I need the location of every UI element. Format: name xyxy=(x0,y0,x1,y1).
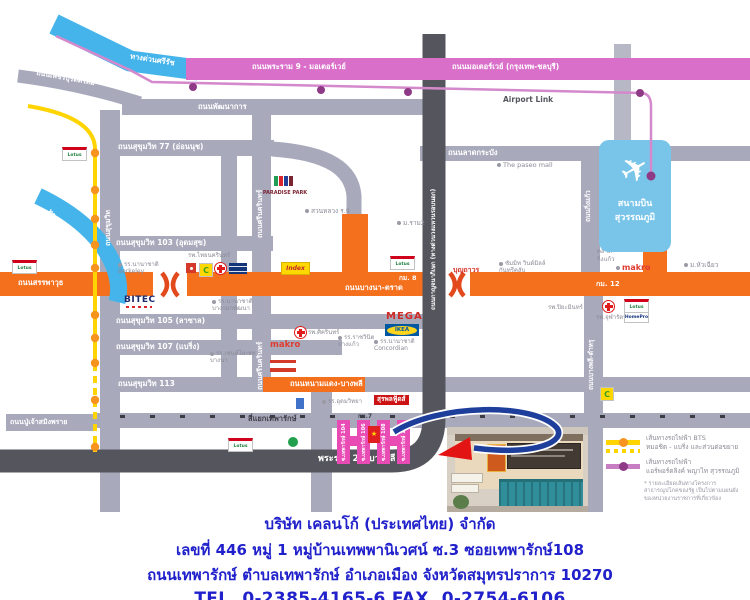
legend-note: * รายละเอียดเส้นทางโครงการสาธารณูปโภคของ… xyxy=(644,481,746,503)
road-label-namdaeng: ถนนหนามแดง-บางพลี xyxy=(290,379,363,388)
legend-arl-text-2: แอร์พอร์ตลิงค์ พญาไท สุวรรณภูมิ xyxy=(646,468,739,476)
makro-logo: makro xyxy=(270,340,300,350)
logo-bar xyxy=(274,176,278,186)
road-label-sukhumvit113: ถนนสุขุมวิท 113 xyxy=(118,379,175,388)
road-label-srinagarindra-lower: ถนนศรีนครินทร์ xyxy=(256,342,264,390)
legend-arl-station-dot xyxy=(619,462,628,471)
lotus-logo: Lotus xyxy=(62,147,87,161)
index-logo: Index xyxy=(281,262,310,275)
road-phatthanakan xyxy=(122,99,428,115)
landmark-berkeley: รร.นานาชาติ Berkeley xyxy=(118,261,159,275)
road-sukhumvit xyxy=(100,110,120,512)
map-dot xyxy=(322,400,326,404)
lotus-logo: Lotus xyxy=(12,260,37,274)
landmark-thainakarin: รพ.ไทยนครินทร์ xyxy=(188,252,230,259)
map-dot xyxy=(684,263,688,267)
road-label-sanphawut: ถนนสรรพาวุธ xyxy=(18,278,63,287)
landmark-paradise-park: PARADISE PARK xyxy=(252,190,318,196)
airplane-icon: ✈ xyxy=(594,135,676,206)
photo-bush xyxy=(453,495,469,509)
address-block: บริษัท เคลนโก้ (ประเทศไทย) จำกัด เลขที่ … xyxy=(55,512,705,600)
road-label-phetchaburi: ถนนเพชรบุรีตัดใหม่ xyxy=(36,69,96,88)
landmark-ram2: ม.ราม2 xyxy=(397,220,425,228)
soi-crossbar xyxy=(350,436,357,446)
logo-bar xyxy=(284,176,288,186)
road-sukhumvit113-namdaeng xyxy=(108,377,750,392)
road-label-dindaeng: ทางด่วนดินแดง-บางนา xyxy=(46,208,92,264)
logo-bar xyxy=(289,176,293,186)
map-dot xyxy=(305,209,309,213)
legend-bts-dashed-line xyxy=(606,449,640,453)
photo-sign-line xyxy=(511,449,573,451)
road-label-srirat: ทางด่วนศรีรัช xyxy=(130,52,176,68)
landmark-patana: รร.นานาชาติ บางกอกพัฒนา xyxy=(212,298,253,312)
bigc-logo: C xyxy=(600,387,614,401)
landmark-huachiew: ม.หัวเฉียว xyxy=(684,262,718,270)
road-label-sukhumvit103: ถนนสุขุมวิท 103 (อุดมสุข) xyxy=(116,238,206,247)
road-label-airport-link: Airport Link xyxy=(503,95,553,104)
landmark-udomwit: รร.อุดมวิทยา xyxy=(322,398,362,405)
landmark-icon-green xyxy=(287,436,299,448)
paradise-park-logo xyxy=(274,176,293,186)
road-orange-stub-suanluang xyxy=(342,214,368,274)
expressway-srirat xyxy=(54,24,198,70)
logo-bar xyxy=(279,176,283,186)
landmark-chularat: รพ.จุฬารัตน์ xyxy=(596,314,627,321)
legend-bts-text-1: เส้นทางรถไฟฟ้า BTS xyxy=(646,435,706,443)
map-dot xyxy=(397,221,401,225)
makro-logo: makro xyxy=(616,263,651,273)
phone-fax: TEL. 0-2385-4165-6 FAX. 0-2754-6106 xyxy=(55,589,705,600)
road-label-kanchanaphisek: ถนนกาญจนาภิเษก (ทางด่วนวงแหวนรอบนอก) xyxy=(430,189,437,310)
map-dot xyxy=(338,336,342,340)
lotus-logo: Lotus xyxy=(228,438,253,452)
road-label-pu-chao: ถนนปู่เจ้าสมิงพราย xyxy=(10,418,67,426)
map-dot xyxy=(616,266,620,270)
address-line-1: เลขที่ 446 หมู่ 1 หมู่บ้านเทพพานิเวศน์ ซ… xyxy=(55,538,705,562)
road-label-rama9-motorway: ถนนพระราม 9 - มอเตอร์เวย์ xyxy=(252,62,346,71)
airport-name-2: สุวรรณภูมิ xyxy=(599,210,671,224)
landmark-suan-luang: สวนหลวง ร.9 xyxy=(305,208,350,216)
landmark-ratchawinit: รร.ราชวินิต บางแก้ว xyxy=(338,334,374,348)
hospital-cross-icon xyxy=(214,262,227,275)
bts-stations xyxy=(91,149,99,451)
bitec-logo: BITEC xyxy=(124,295,156,306)
homepro-logo: HomePro xyxy=(624,312,649,323)
road-label-motorway: ถนนมอเตอร์เวย์ (กรุงเทพ-ชลบุรี) xyxy=(452,62,559,71)
photo-poster xyxy=(487,444,506,472)
road-label-thepharak-junction: สี่แยกเทพารักษ์ xyxy=(248,414,297,423)
soi-label-108: ซ.เทพารักษ์ 108 xyxy=(380,423,388,461)
soi-crossbar xyxy=(390,436,397,446)
landmark-st-joseph: รร.เซนต์โยเซฟ บางนา xyxy=(210,350,256,364)
road-label-sukhumvit: ถนนสุขุมวิท xyxy=(104,210,112,246)
ikea-oval: IKEA xyxy=(387,326,417,335)
map-canvas: ถนนเพชรบุรีตัดใหม่ ทางด่วนศรีรัช ถนนพระร… xyxy=(0,0,750,600)
road-label-bangphli-tamru: ถนนบางพลี-ตำหรุ xyxy=(588,340,596,390)
soi-label-106: ซ.เทพารักษ์ 106 xyxy=(360,423,368,461)
surapon-foods-label: สุรพลฟู้ดส์ xyxy=(374,395,409,405)
photo-small-sign xyxy=(451,473,483,483)
road-label-lat-krabang: ถนนลาดกระบัง xyxy=(448,148,498,157)
map-dot xyxy=(499,262,503,266)
km-marker-12: กม. 12 xyxy=(596,280,620,288)
ikea-logo: IKEA xyxy=(385,324,419,336)
photo-sign-line xyxy=(511,455,565,457)
company-name: บริษัท เคลนโก้ (ประเทศไทย) จำกัด xyxy=(55,512,705,536)
store-logo xyxy=(270,360,296,372)
landmark-sikarin: รพ.ศิครินทร์ xyxy=(308,329,339,336)
mega-logo: MEGA xyxy=(386,311,423,323)
bitec-logo-dots xyxy=(126,306,152,308)
road-label-king-kaeo: ถนนกิ่งแก้ว xyxy=(585,190,593,222)
store-logo-red xyxy=(186,263,196,273)
legend-bts-station-dot xyxy=(619,438,628,447)
map-dot xyxy=(118,263,122,267)
company-location-marker: ★ xyxy=(368,426,380,443)
suvarnabhumi-airport-box: ✈ สนามบิน สุวรรณภูมิ xyxy=(599,140,671,252)
map-dot xyxy=(374,340,378,344)
landmark-summit-windmill: ซัมมิท วินด์มิลล์ กันทรีคลับ xyxy=(499,260,546,274)
soi-label-104: ซ.เทพารักษ์ 104 xyxy=(340,423,348,461)
landmark-concordian: รร.นานาชาติ Concordian xyxy=(374,338,415,352)
address-line-2: ถนนเทพารักษ์ ตำบลเทพารักษ์ อำเภอเมือง จั… xyxy=(55,563,705,587)
road-label-sukhumvit105: ถนนสุขุมวิท 105 (ลาซาล) xyxy=(116,316,205,325)
photo-roof xyxy=(455,434,583,441)
thepharak-road-ticks xyxy=(120,415,744,418)
lotus-logo: Lotus xyxy=(390,256,415,270)
lotus-logo: Lotus xyxy=(624,299,649,313)
road-label-bangna-trat: ถนนบางนา-ตราด xyxy=(345,283,403,292)
road-label-srinagarindra-upper: ถนนศรีนครินทร์ xyxy=(256,190,264,238)
map-dot xyxy=(210,352,214,356)
map-dot xyxy=(212,300,216,304)
road-label-phatthanakan: ถนนพัฒนาการ xyxy=(198,102,247,111)
hospital-cross-icon xyxy=(602,300,615,313)
road-label-sukhumvit107: ถนนสุขุมวิท 107 (แบริ่ง) xyxy=(116,342,200,351)
hospital-cross-icon xyxy=(294,326,307,339)
road-label-sukhumvit77: ถนนสุขุมวิท 77 (อ่อนนุช) xyxy=(118,142,203,151)
km-marker-8: กม. 8 xyxy=(399,275,416,283)
landmark-icon-blue xyxy=(296,398,304,409)
legend-bts-text-2: หมอชิต - แบริ่ง และส่วนต่อขยาย xyxy=(646,444,738,452)
map-dot xyxy=(497,163,501,167)
photo-small-sign xyxy=(451,484,479,493)
landmark-piyamin: รพ.ปิยะมินทร์ xyxy=(548,304,583,311)
legend-arl-text-1: เส้นทางรถไฟฟ้า xyxy=(646,459,691,467)
boonthavorn-logo: บุญถาวร xyxy=(453,266,479,274)
landmark-the-paseo: The paseo mall xyxy=(497,162,553,170)
central-bangna-logo xyxy=(229,263,247,274)
bigc-logo: C xyxy=(199,263,213,277)
building-photo xyxy=(447,427,588,512)
soi-label-110: ซ.เทพารักษ์ 110 xyxy=(400,423,408,461)
